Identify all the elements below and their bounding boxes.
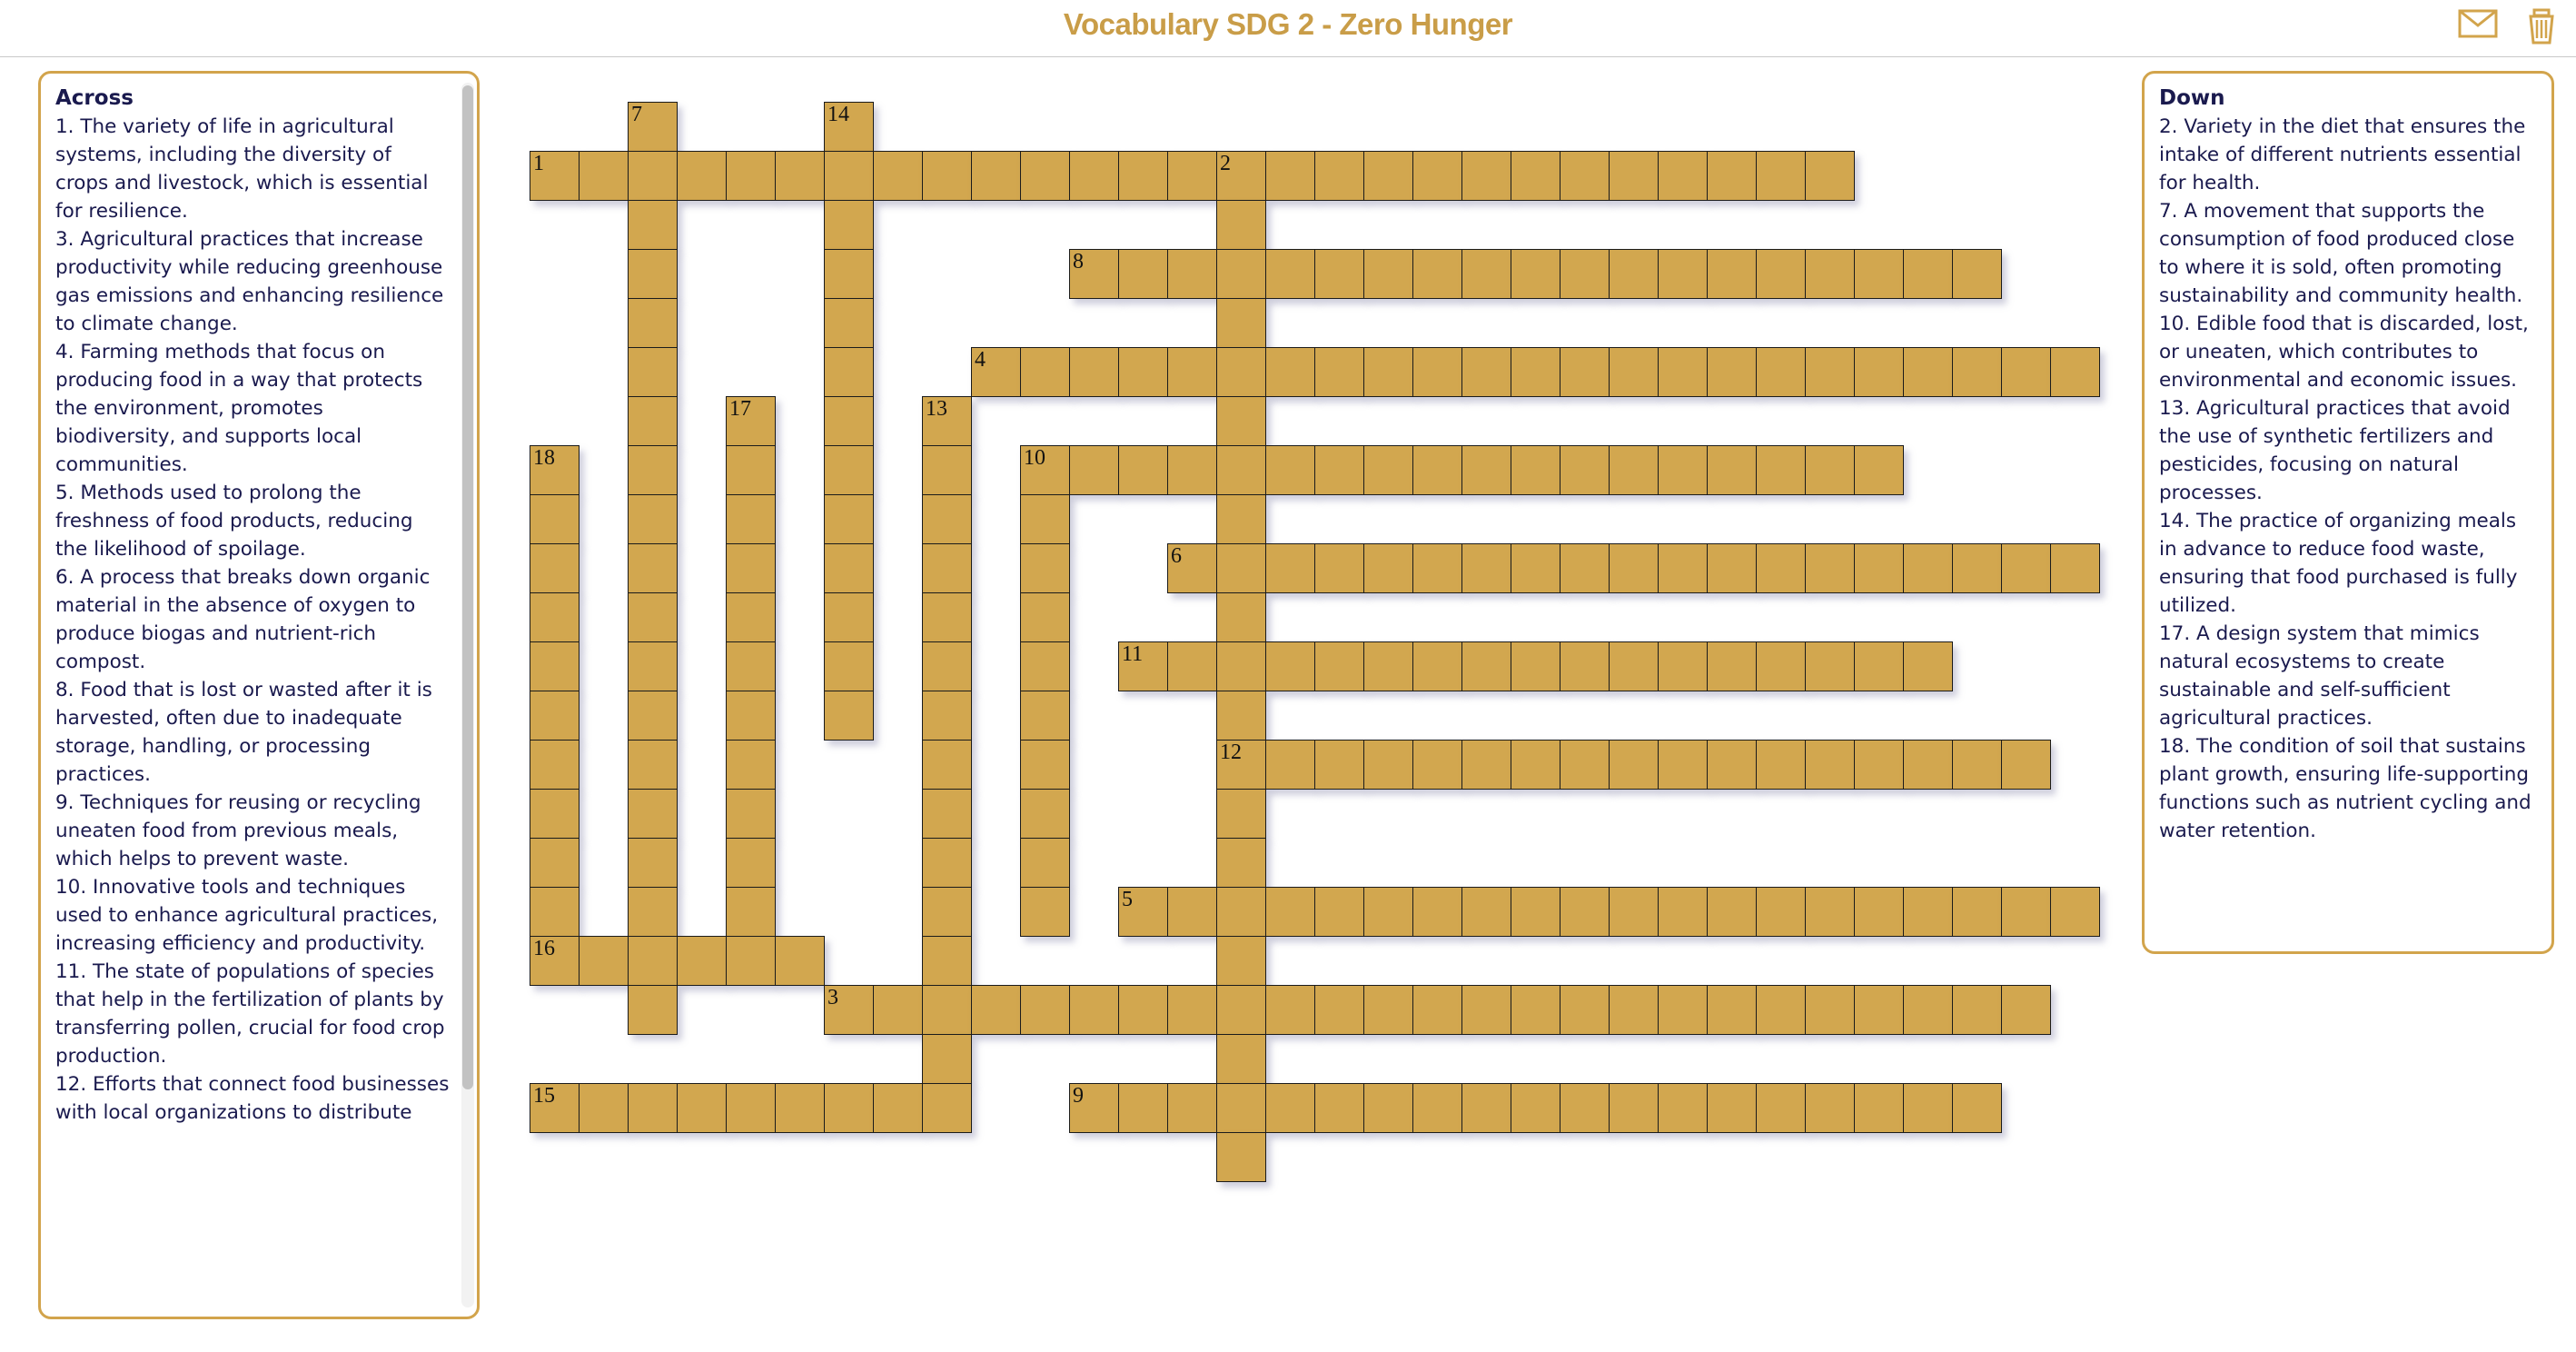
grid-cell[interactable]: 9 — [1069, 1083, 1119, 1133]
grid-cell[interactable] — [922, 936, 972, 986]
grid-cell[interactable] — [922, 789, 972, 839]
grid-cell[interactable] — [1658, 445, 1708, 495]
grid-cell[interactable]: 1 — [530, 151, 580, 201]
grid-cell[interactable] — [873, 151, 923, 201]
grid-cell[interactable] — [1707, 445, 1757, 495]
grid-cell[interactable] — [726, 543, 776, 593]
grid-cell[interactable] — [1756, 445, 1806, 495]
grid-cell[interactable] — [1167, 641, 1217, 691]
mail-icon[interactable] — [2457, 7, 2499, 40]
grid-cell[interactable] — [1658, 1083, 1708, 1133]
grid-cell[interactable] — [1511, 740, 1560, 790]
grid-cell[interactable] — [824, 592, 874, 642]
grid-cell[interactable] — [922, 445, 972, 495]
grid-cell[interactable] — [1658, 641, 1708, 691]
grid-cell[interactable] — [1658, 543, 1708, 593]
grid-cell[interactable] — [628, 887, 678, 937]
grid-cell[interactable] — [1560, 445, 1610, 495]
grid-cell[interactable] — [1461, 1083, 1511, 1133]
grid-cell[interactable] — [1560, 249, 1610, 299]
grid-cell[interactable] — [824, 298, 874, 348]
grid-cell[interactable] — [628, 543, 678, 593]
grid-cell[interactable] — [1314, 543, 1364, 593]
grid-cell[interactable] — [530, 887, 580, 937]
grid-cell[interactable] — [1216, 249, 1266, 299]
grid-cell[interactable] — [1118, 985, 1168, 1035]
grid-cell[interactable] — [1805, 151, 1855, 201]
grid-cell[interactable] — [1314, 249, 1364, 299]
grid-cell[interactable] — [1412, 249, 1462, 299]
grid-cell[interactable] — [530, 691, 580, 741]
grid-cell[interactable] — [1854, 887, 1904, 937]
grid-cell[interactable] — [2050, 347, 2100, 397]
grid-cell[interactable] — [1952, 249, 2002, 299]
grid-cell[interactable] — [1265, 641, 1315, 691]
grid-cell[interactable] — [922, 691, 972, 741]
grid-cell[interactable] — [1412, 543, 1462, 593]
grid-cell[interactable] — [1216, 543, 1266, 593]
grid-cell[interactable] — [1020, 985, 1070, 1035]
grid-cell[interactable] — [971, 985, 1021, 1035]
grid-cell[interactable] — [1854, 347, 1904, 397]
grid-cell[interactable] — [1461, 151, 1511, 201]
grid-cell[interactable] — [1854, 641, 1904, 691]
grid-cell[interactable] — [1560, 887, 1610, 937]
grid-cell[interactable] — [971, 151, 1021, 201]
scrollbar-thumb[interactable] — [462, 85, 473, 1089]
grid-cell[interactable] — [628, 936, 678, 986]
grid-cell[interactable] — [1216, 1034, 1266, 1084]
grid-cell[interactable] — [1216, 445, 1266, 495]
grid-cell[interactable] — [628, 691, 678, 741]
grid-cell[interactable] — [1461, 985, 1511, 1035]
grid-cell[interactable] — [1314, 151, 1364, 201]
grid-cell[interactable] — [1805, 249, 1855, 299]
grid-cell[interactable] — [726, 1083, 776, 1133]
grid-cell[interactable]: 8 — [1069, 249, 1119, 299]
grid-cell[interactable] — [1167, 887, 1217, 937]
grid-cell[interactable] — [1560, 1083, 1610, 1133]
grid-cell[interactable]: 17 — [726, 396, 776, 446]
grid-cell[interactable] — [1461, 445, 1511, 495]
grid-cell[interactable] — [726, 641, 776, 691]
grid-cell[interactable]: 4 — [971, 347, 1021, 397]
grid-cell[interactable] — [1265, 151, 1315, 201]
grid-cell[interactable] — [2050, 543, 2100, 593]
grid-cell[interactable] — [1412, 887, 1462, 937]
grid-cell[interactable] — [1363, 543, 1413, 593]
grid-cell[interactable] — [1854, 1083, 1904, 1133]
grid-cell[interactable] — [1658, 985, 1708, 1035]
grid-cell[interactable] — [2001, 985, 2051, 1035]
grid-cell[interactable] — [922, 985, 972, 1035]
grid-cell[interactable] — [1903, 887, 1953, 937]
grid-cell[interactable] — [1707, 151, 1757, 201]
grid-cell[interactable] — [1314, 887, 1364, 937]
grid-cell[interactable] — [677, 936, 727, 986]
grid-cell[interactable] — [579, 1083, 629, 1133]
grid-cell[interactable] — [726, 691, 776, 741]
grid-cell[interactable] — [1216, 887, 1266, 937]
grid-cell[interactable] — [1314, 985, 1364, 1035]
grid-cell[interactable] — [1805, 887, 1855, 937]
grid-cell[interactable] — [579, 936, 629, 986]
grid-cell[interactable] — [628, 445, 678, 495]
grid-cell[interactable] — [726, 740, 776, 790]
grid-cell[interactable] — [1461, 543, 1511, 593]
grid-cell[interactable] — [726, 445, 776, 495]
grid-cell[interactable] — [1560, 985, 1610, 1035]
grid-cell[interactable] — [1511, 347, 1560, 397]
grid-cell[interactable] — [1118, 151, 1168, 201]
grid-cell[interactable] — [1952, 985, 2002, 1035]
grid-cell[interactable] — [1609, 151, 1659, 201]
grid-cell[interactable] — [1461, 887, 1511, 937]
grid-cell[interactable] — [1363, 887, 1413, 937]
grid-cell[interactable] — [1020, 691, 1070, 741]
grid-cell[interactable] — [1658, 887, 1708, 937]
grid-cell[interactable] — [1903, 641, 1953, 691]
grid-cell[interactable] — [922, 494, 972, 544]
grid-cell[interactable] — [1756, 543, 1806, 593]
grid-cell[interactable] — [1265, 445, 1315, 495]
grid-cell[interactable]: 6 — [1167, 543, 1217, 593]
grid-cell[interactable] — [1412, 1083, 1462, 1133]
grid-cell[interactable] — [530, 740, 580, 790]
grid-cell[interactable] — [1020, 789, 1070, 839]
grid-cell[interactable] — [1854, 445, 1904, 495]
grid-cell[interactable] — [775, 936, 825, 986]
grid-cell[interactable] — [2001, 887, 2051, 937]
grid-cell[interactable] — [1020, 151, 1070, 201]
grid-cell[interactable] — [1511, 445, 1560, 495]
grid-cell[interactable] — [1167, 445, 1217, 495]
grid-cell[interactable] — [1707, 985, 1757, 1035]
grid-cell[interactable] — [1609, 740, 1659, 790]
grid-cell[interactable] — [1511, 249, 1560, 299]
grid-cell[interactable] — [1118, 445, 1168, 495]
grid-cell[interactable] — [1265, 887, 1315, 937]
grid-cell[interactable] — [1609, 445, 1659, 495]
grid-cell[interactable] — [1707, 543, 1757, 593]
grid-cell[interactable] — [824, 1083, 874, 1133]
grid-cell[interactable] — [1461, 249, 1511, 299]
grid-cell[interactable] — [628, 592, 678, 642]
grid-cell[interactable] — [1658, 740, 1708, 790]
grid-cell[interactable] — [824, 200, 874, 250]
grid-cell[interactable] — [1118, 347, 1168, 397]
grid-cell[interactable] — [1903, 249, 1953, 299]
grid-cell[interactable] — [2050, 887, 2100, 937]
grid-cell[interactable] — [1609, 985, 1659, 1035]
grid-cell[interactable] — [726, 838, 776, 888]
grid-cell[interactable] — [726, 789, 776, 839]
grid-cell[interactable] — [726, 936, 776, 986]
grid-cell[interactable] — [1658, 249, 1708, 299]
grid-cell[interactable] — [1069, 985, 1119, 1035]
grid-cell[interactable] — [1560, 151, 1610, 201]
grid-cell[interactable] — [1069, 347, 1119, 397]
grid-cell[interactable] — [1118, 1083, 1168, 1133]
grid-cell[interactable] — [922, 838, 972, 888]
grid-cell[interactable] — [1216, 494, 1266, 544]
grid-cell[interactable] — [628, 347, 678, 397]
grid-cell[interactable] — [1952, 1083, 2002, 1133]
grid-cell[interactable] — [530, 838, 580, 888]
grid-cell[interactable] — [1020, 347, 1070, 397]
grid-cell[interactable] — [1020, 740, 1070, 790]
grid-cell[interactable] — [1216, 347, 1266, 397]
grid-cell[interactable] — [1216, 298, 1266, 348]
grid-cell[interactable] — [824, 151, 874, 201]
grid-cell[interactable] — [1609, 249, 1659, 299]
grid-cell[interactable] — [824, 347, 874, 397]
grid-cell[interactable]: 15 — [530, 1083, 580, 1133]
grid-cell[interactable] — [1363, 445, 1413, 495]
grid-cell[interactable]: 2 — [1216, 151, 1266, 201]
grid-cell[interactable] — [1756, 249, 1806, 299]
grid-cell[interactable] — [1952, 740, 2002, 790]
grid-cell[interactable] — [1363, 249, 1413, 299]
grid-cell[interactable] — [1952, 543, 2002, 593]
grid-cell[interactable] — [1363, 347, 1413, 397]
grid-cell[interactable] — [579, 151, 629, 201]
grid-cell[interactable] — [1609, 347, 1659, 397]
grid-cell[interactable] — [1363, 985, 1413, 1035]
grid-cell[interactable] — [1412, 151, 1462, 201]
grid-cell[interactable] — [1265, 740, 1315, 790]
grid-cell[interactable] — [628, 151, 678, 201]
grid-cell[interactable] — [873, 1083, 923, 1133]
grid-cell[interactable]: 12 — [1216, 740, 1266, 790]
trash-icon[interactable] — [2523, 7, 2560, 45]
grid-cell[interactable] — [824, 691, 874, 741]
grid-cell[interactable] — [1020, 494, 1070, 544]
grid-cell[interactable] — [1167, 249, 1217, 299]
grid-cell[interactable] — [726, 151, 776, 201]
grid-cell[interactable] — [1412, 445, 1462, 495]
grid-cell[interactable] — [1609, 641, 1659, 691]
grid-cell[interactable] — [1167, 151, 1217, 201]
grid-cell[interactable] — [1314, 1083, 1364, 1133]
grid-cell[interactable] — [1020, 838, 1070, 888]
grid-cell[interactable] — [873, 985, 923, 1035]
grid-cell[interactable] — [2001, 347, 2051, 397]
grid-cell[interactable] — [1756, 1083, 1806, 1133]
grid-cell[interactable] — [1412, 347, 1462, 397]
grid-cell[interactable] — [628, 249, 678, 299]
grid-cell[interactable] — [1265, 249, 1315, 299]
grid-cell[interactable] — [1412, 985, 1462, 1035]
grid-cell[interactable] — [1707, 1083, 1757, 1133]
grid-cell[interactable] — [1560, 543, 1610, 593]
grid-cell[interactable] — [1118, 249, 1168, 299]
grid-cell[interactable] — [1854, 740, 1904, 790]
grid-cell[interactable] — [1756, 641, 1806, 691]
grid-cell[interactable] — [922, 1083, 972, 1133]
grid-cell[interactable] — [1412, 740, 1462, 790]
grid-cell[interactable] — [1020, 641, 1070, 691]
grid-cell[interactable] — [1756, 347, 1806, 397]
grid-cell[interactable] — [1805, 347, 1855, 397]
grid-cell[interactable] — [1952, 347, 2002, 397]
scrollbar-track[interactable] — [461, 83, 474, 1307]
grid-cell[interactable] — [726, 494, 776, 544]
grid-cell[interactable]: 3 — [824, 985, 874, 1035]
grid-cell[interactable] — [1216, 838, 1266, 888]
grid-cell[interactable] — [1952, 887, 2002, 937]
grid-cell[interactable] — [1363, 740, 1413, 790]
grid-cell[interactable] — [1314, 445, 1364, 495]
grid-cell[interactable] — [1707, 249, 1757, 299]
grid-cell[interactable] — [1216, 1132, 1266, 1182]
grid-cell[interactable] — [1903, 543, 1953, 593]
grid-cell[interactable] — [1756, 740, 1806, 790]
grid-cell[interactable] — [1805, 641, 1855, 691]
grid-cell[interactable] — [1363, 151, 1413, 201]
grid-cell[interactable] — [1167, 347, 1217, 397]
grid-cell[interactable] — [1805, 1083, 1855, 1133]
grid-cell[interactable] — [1658, 347, 1708, 397]
grid-cell[interactable] — [677, 151, 727, 201]
grid-cell[interactable] — [628, 985, 678, 1035]
grid-cell[interactable] — [1658, 151, 1708, 201]
grid-cell[interactable] — [1511, 543, 1560, 593]
grid-cell[interactable] — [1020, 543, 1070, 593]
grid-cell[interactable] — [922, 1034, 972, 1084]
grid-cell[interactable] — [775, 1083, 825, 1133]
grid-cell[interactable] — [1511, 887, 1560, 937]
grid-cell[interactable] — [1756, 887, 1806, 937]
grid-cell[interactable] — [1265, 543, 1315, 593]
grid-cell[interactable] — [1216, 691, 1266, 741]
grid-cell[interactable] — [824, 494, 874, 544]
grid-cell[interactable] — [1216, 985, 1266, 1035]
grid-cell[interactable] — [628, 789, 678, 839]
grid-cell[interactable] — [1805, 543, 1855, 593]
grid-cell[interactable] — [1511, 151, 1560, 201]
grid-cell[interactable] — [1216, 1083, 1266, 1133]
grid-cell[interactable] — [1020, 887, 1070, 937]
grid-cell[interactable] — [1167, 1083, 1217, 1133]
grid-cell[interactable] — [1461, 347, 1511, 397]
grid-cell[interactable] — [1609, 543, 1659, 593]
grid-cell[interactable] — [1903, 1083, 1953, 1133]
grid-cell[interactable] — [1412, 641, 1462, 691]
grid-cell[interactable] — [628, 200, 678, 250]
grid-cell[interactable] — [628, 396, 678, 446]
grid-cell[interactable] — [1805, 740, 1855, 790]
grid-cell[interactable] — [1560, 347, 1610, 397]
grid-cell[interactable] — [1854, 543, 1904, 593]
grid-cell[interactable] — [1756, 151, 1806, 201]
grid-cell[interactable] — [1707, 740, 1757, 790]
grid-cell[interactable] — [1707, 887, 1757, 937]
grid-cell[interactable] — [1805, 445, 1855, 495]
grid-cell[interactable] — [1609, 887, 1659, 937]
grid-cell[interactable] — [1216, 200, 1266, 250]
grid-cell[interactable] — [775, 151, 825, 201]
grid-cell[interactable] — [1069, 445, 1119, 495]
grid-cell[interactable] — [1560, 740, 1610, 790]
grid-cell[interactable] — [824, 249, 874, 299]
grid-cell[interactable] — [1216, 592, 1266, 642]
grid-cell[interactable] — [922, 592, 972, 642]
grid-cell[interactable] — [922, 641, 972, 691]
grid-cell[interactable] — [1216, 936, 1266, 986]
grid-cell[interactable] — [1265, 1083, 1315, 1133]
grid-cell[interactable] — [1560, 641, 1610, 691]
grid-cell[interactable] — [530, 789, 580, 839]
grid-cell[interactable] — [677, 1083, 727, 1133]
grid-cell[interactable] — [2001, 543, 2051, 593]
grid-cell[interactable] — [1216, 789, 1266, 839]
grid-cell[interactable]: 11 — [1118, 641, 1168, 691]
grid-cell[interactable] — [628, 1083, 678, 1133]
grid-cell[interactable] — [1903, 347, 1953, 397]
grid-cell[interactable]: 13 — [922, 396, 972, 446]
grid-cell[interactable] — [922, 151, 972, 201]
grid-cell[interactable]: 5 — [1118, 887, 1168, 937]
grid-cell[interactable] — [1511, 1083, 1560, 1133]
grid-cell[interactable] — [824, 396, 874, 446]
grid-cell[interactable] — [1363, 1083, 1413, 1133]
grid-cell[interactable] — [628, 641, 678, 691]
grid-cell[interactable] — [2001, 740, 2051, 790]
grid-cell[interactable] — [530, 543, 580, 593]
grid-cell[interactable] — [628, 494, 678, 544]
grid-cell[interactable]: 14 — [824, 102, 874, 152]
grid-cell[interactable] — [1265, 985, 1315, 1035]
grid-cell[interactable]: 16 — [530, 936, 580, 986]
grid-cell[interactable] — [1265, 347, 1315, 397]
grid-cell[interactable] — [1069, 151, 1119, 201]
grid-cell[interactable] — [1314, 347, 1364, 397]
grid-cell[interactable] — [726, 887, 776, 937]
grid-cell[interactable] — [1707, 641, 1757, 691]
grid-cell[interactable] — [726, 592, 776, 642]
grid-cell[interactable] — [1609, 1083, 1659, 1133]
grid-cell[interactable]: 7 — [628, 102, 678, 152]
grid-cell[interactable] — [1854, 249, 1904, 299]
grid-cell[interactable] — [628, 740, 678, 790]
grid-cell[interactable] — [1167, 985, 1217, 1035]
grid-cell[interactable] — [530, 494, 580, 544]
grid-cell[interactable] — [530, 641, 580, 691]
grid-cell[interactable] — [1020, 592, 1070, 642]
grid-cell[interactable] — [824, 445, 874, 495]
grid-cell[interactable] — [1854, 985, 1904, 1035]
grid-cell[interactable] — [1314, 641, 1364, 691]
grid-cell[interactable] — [922, 740, 972, 790]
grid-cell[interactable] — [1363, 641, 1413, 691]
grid-cell[interactable] — [824, 641, 874, 691]
grid-cell[interactable] — [1511, 641, 1560, 691]
grid-cell[interactable] — [628, 838, 678, 888]
grid-cell[interactable] — [1756, 985, 1806, 1035]
grid-cell[interactable] — [1805, 985, 1855, 1035]
grid-cell[interactable]: 18 — [530, 445, 580, 495]
grid-cell[interactable] — [1461, 641, 1511, 691]
grid-cell[interactable] — [1314, 740, 1364, 790]
grid-cell[interactable] — [1903, 985, 1953, 1035]
grid-cell[interactable] — [1903, 740, 1953, 790]
grid-cell[interactable] — [628, 298, 678, 348]
grid-cell[interactable] — [824, 543, 874, 593]
grid-cell[interactable] — [1216, 396, 1266, 446]
grid-cell[interactable]: 10 — [1020, 445, 1070, 495]
grid-cell[interactable] — [1461, 740, 1511, 790]
